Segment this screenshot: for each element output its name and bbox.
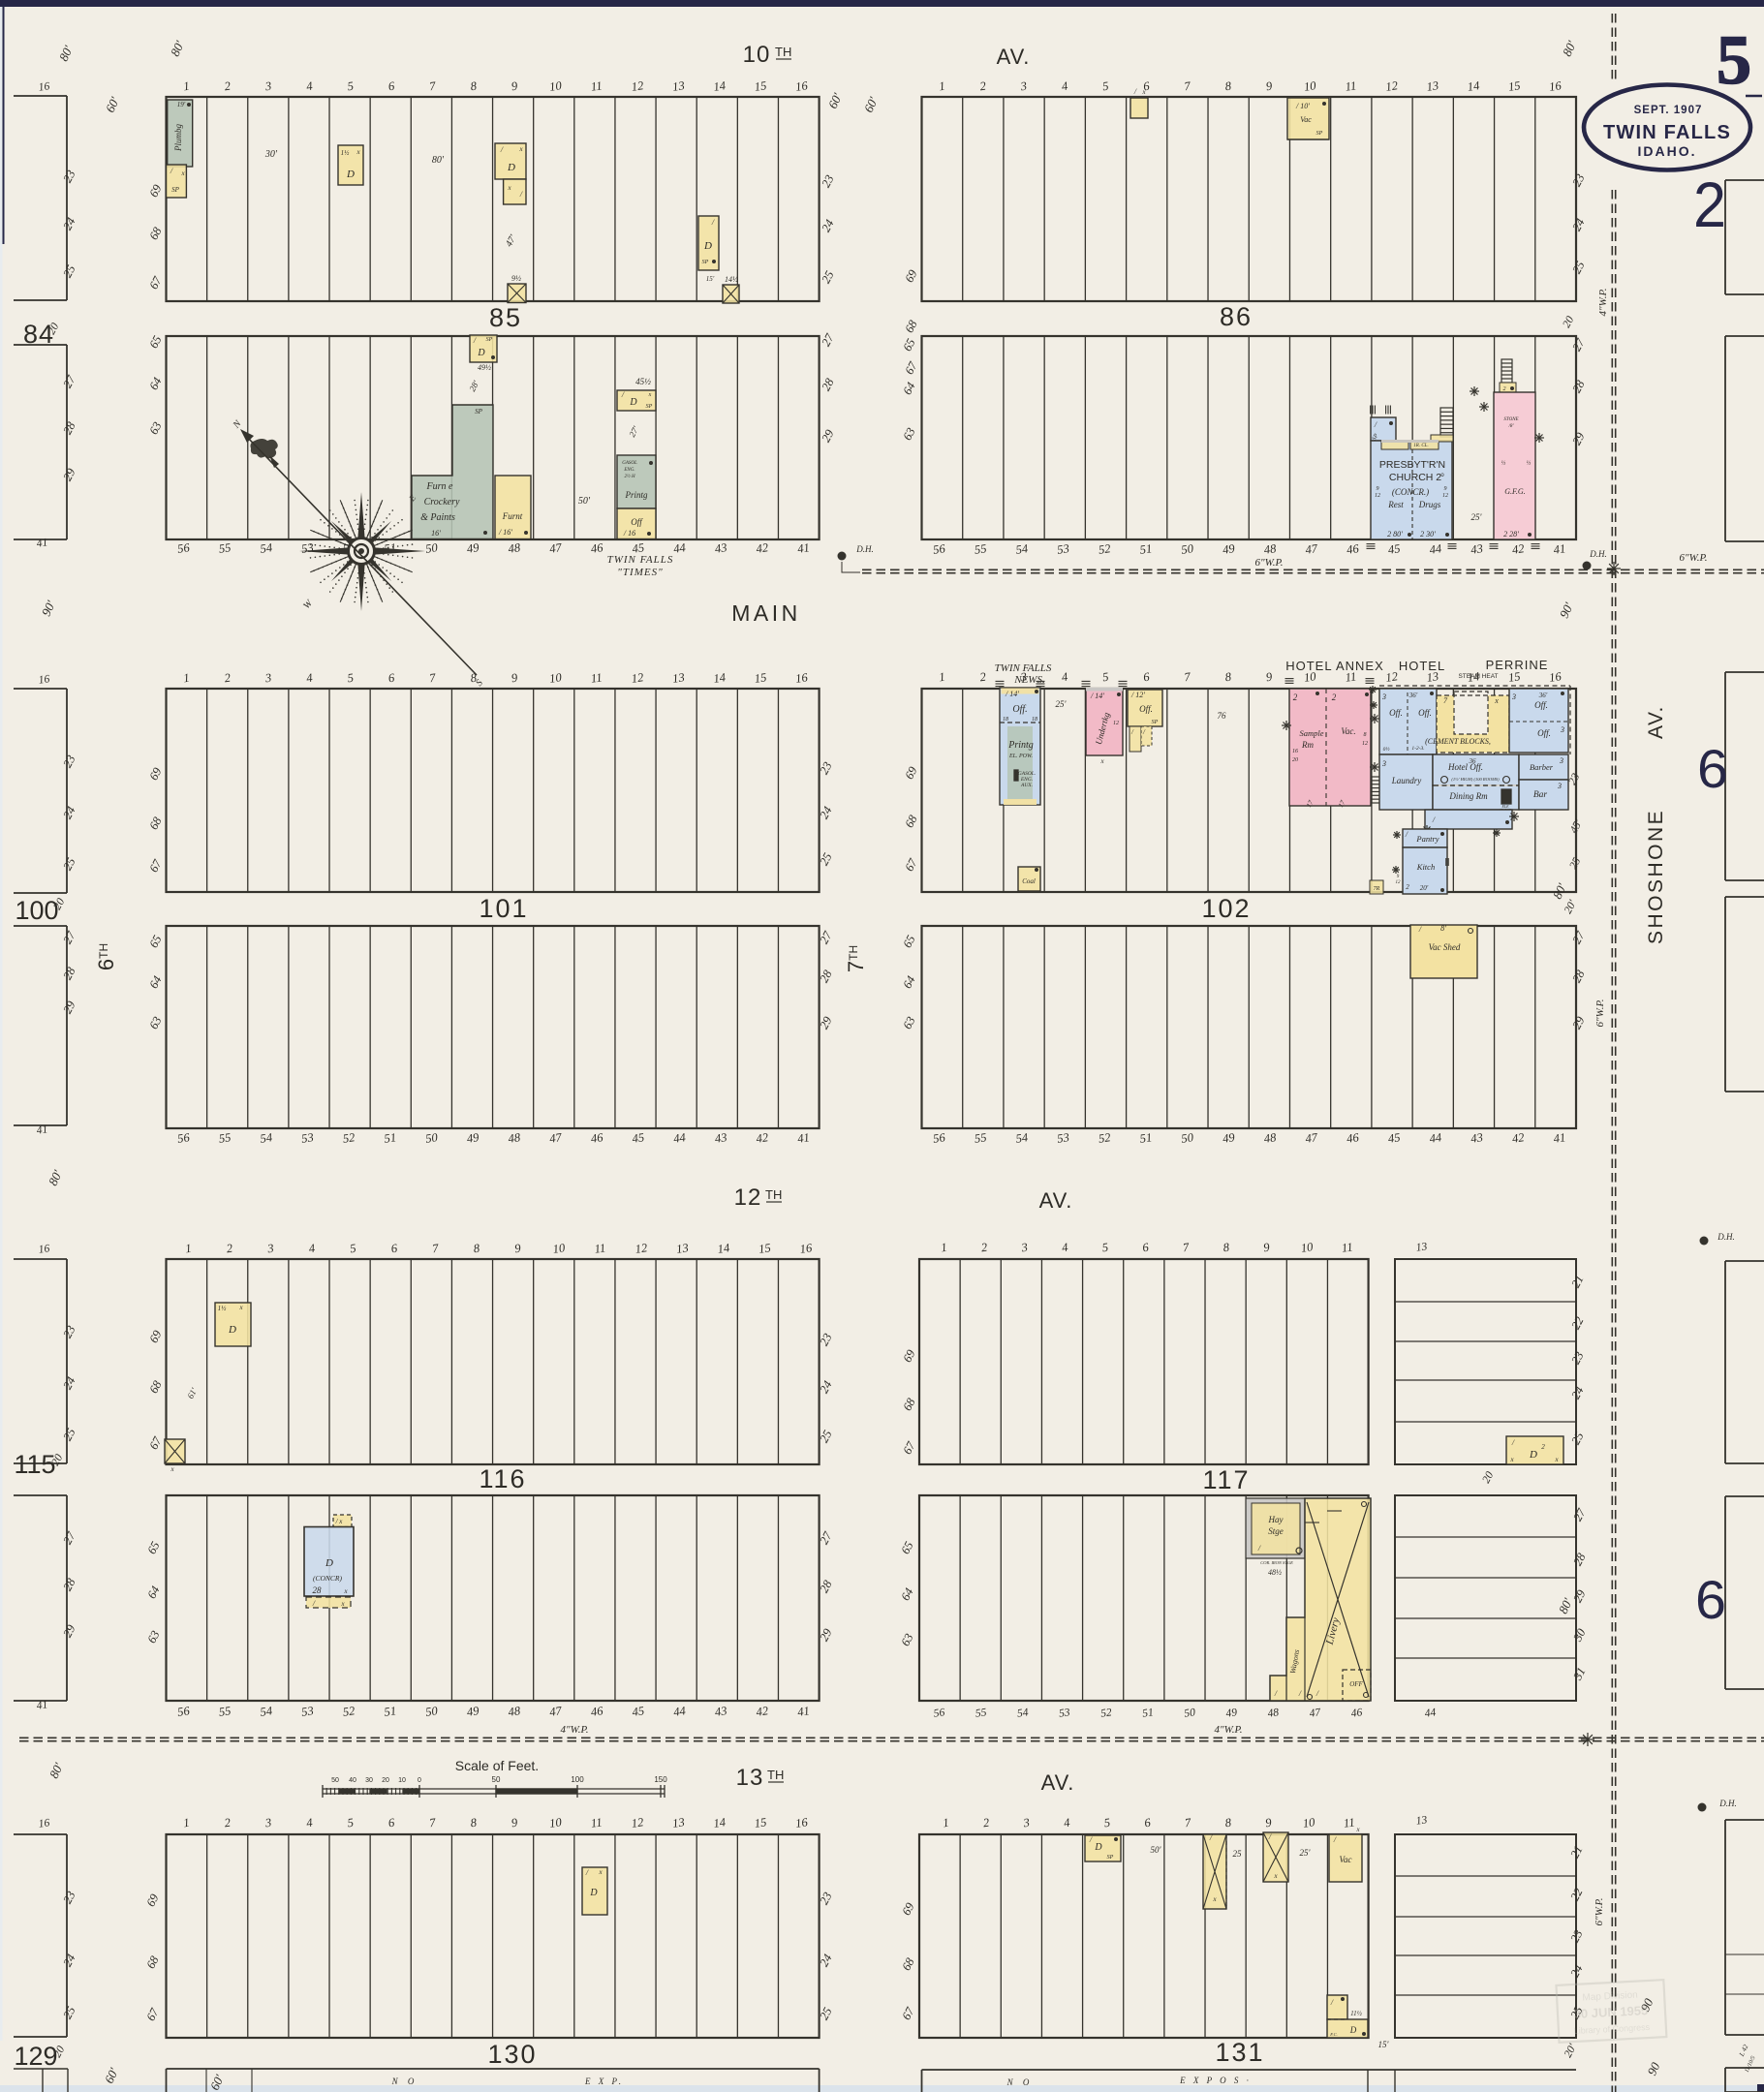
svg-text:45: 45 (632, 1704, 645, 1719)
svg-text:41: 41 (1553, 1130, 1566, 1146)
svg-text:8': 8' (1440, 924, 1446, 933)
svg-text:85: 85 (489, 303, 522, 332)
svg-text:45: 45 (1387, 1130, 1401, 1146)
svg-text:102: 102 (1201, 894, 1251, 923)
svg-text:52: 52 (342, 1704, 356, 1719)
svg-text:12: 12 (1384, 78, 1398, 94)
svg-text:/ 16': / 16' (498, 528, 512, 537)
svg-text:6: 6 (1695, 1569, 1726, 1630)
svg-text:PRESBYT'R'N: PRESBYT'R'N (1379, 459, 1445, 471)
svg-text:D: D (346, 169, 355, 180)
svg-text:12: 12 (631, 78, 644, 94)
svg-text:D: D (589, 1888, 598, 1898)
svg-text:50: 50 (1184, 1707, 1196, 1720)
svg-text:49: 49 (1225, 1707, 1238, 1720)
svg-text:Off.: Off. (1537, 728, 1551, 738)
svg-text:& Paints: & Paints (420, 512, 455, 523)
svg-text:Bar: Bar (1533, 790, 1548, 800)
svg-text:4"W.P.: 4"W.P. (560, 1724, 588, 1736)
svg-text:129: 129 (14, 2042, 57, 2071)
svg-text:16: 16 (38, 1243, 50, 1256)
svg-text:150: 150 (654, 1775, 667, 1784)
svg-text:x: x (648, 392, 652, 398)
svg-text:44: 44 (1424, 1707, 1437, 1720)
svg-text:Vac: Vac (1340, 1855, 1352, 1864)
svg-text:20': 20' (1420, 884, 1429, 892)
svg-text:3: 3 (1560, 725, 1564, 734)
svg-text:/ 14': / 14' (1005, 690, 1019, 698)
svg-text:13: 13 (1415, 1814, 1428, 1828)
svg-text:Sample: Sample (1299, 728, 1323, 738)
svg-text:Off.: Off. (1139, 704, 1153, 714)
svg-text:Rest: Rest (1387, 500, 1404, 509)
svg-text:SP: SP (486, 337, 493, 343)
svg-text:40: 40 (349, 1777, 356, 1784)
svg-text:1½: 1½ (218, 1305, 228, 1312)
svg-text:Dining Rm: Dining Rm (1448, 791, 1488, 801)
svg-text:TH: TH (767, 1768, 784, 1782)
svg-text:25: 25 (1233, 1849, 1243, 1859)
svg-text:12: 12 (1396, 880, 1402, 885)
svg-text:116: 116 (479, 1464, 526, 1493)
svg-text:Vac Shed: Vac Shed (1429, 942, 1461, 952)
svg-text:16: 16 (38, 1817, 50, 1830)
svg-text:D.H.: D.H. (1717, 1232, 1735, 1242)
svg-text:42: 42 (756, 540, 769, 556)
svg-text:52: 52 (342, 1130, 356, 1146)
svg-text:AV.: AV. (1645, 705, 1667, 739)
svg-text:13: 13 (675, 1241, 689, 1256)
svg-text:52: 52 (1099, 1707, 1112, 1720)
svg-text:Hay: Hay (1268, 1515, 1284, 1524)
svg-text:6: 6 (1697, 738, 1728, 799)
svg-text:55: 55 (974, 1130, 987, 1146)
svg-text:55: 55 (974, 541, 987, 557)
svg-text:55: 55 (218, 1704, 232, 1719)
svg-text:80': 80' (432, 155, 445, 166)
svg-text:16: 16 (38, 673, 50, 687)
svg-text:SEPT. 1907: SEPT. 1907 (1634, 105, 1703, 116)
svg-text:D.H.: D.H. (855, 544, 874, 554)
svg-text:Vac.: Vac. (1341, 726, 1355, 736)
svg-text:Crockery: Crockery (424, 497, 460, 508)
svg-text:49½: 49½ (478, 363, 491, 372)
svg-text:12: 12 (1384, 669, 1398, 685)
svg-text:D: D (477, 348, 485, 358)
svg-text:4"W.P.: 4"W.P. (1214, 1724, 1242, 1736)
svg-text:0: 0 (418, 1777, 421, 1784)
svg-text:AV.: AV. (1041, 1770, 1075, 1795)
svg-text:19': 19' (177, 101, 186, 108)
svg-text:3: 3 (1381, 759, 1386, 768)
svg-text:HOTEL: HOTEL (1399, 659, 1445, 673)
svg-text:30': 30' (264, 149, 278, 160)
svg-text:N O: N O (1006, 2077, 1034, 2087)
svg-text:53: 53 (300, 1130, 314, 1146)
svg-text:/ 16: / 16 (623, 529, 635, 538)
svg-text:/ 10': / 10' (1295, 102, 1310, 110)
svg-text:Off.: Off. (1012, 704, 1027, 715)
svg-text:D: D (703, 240, 712, 252)
svg-text:51: 51 (384, 1704, 397, 1719)
svg-text:56: 56 (933, 1707, 945, 1720)
svg-text:D: D (629, 397, 637, 408)
svg-text:D: D (1529, 1449, 1537, 1461)
svg-text:50': 50' (1151, 1845, 1162, 1855)
svg-text:½: ½ (1527, 460, 1532, 467)
svg-text:0½: 0½ (1383, 746, 1390, 753)
svg-text:45: 45 (1387, 541, 1401, 557)
svg-text:(CONCR): (CONCR) (313, 1574, 343, 1583)
svg-text:30: 30 (365, 1777, 373, 1784)
svg-text:2: 2 (1293, 692, 1298, 702)
svg-text:12: 12 (1362, 741, 1368, 747)
svg-text:43: 43 (714, 540, 727, 556)
svg-text:11: 11 (590, 78, 603, 93)
svg-text:AUX.: AUX. (1020, 783, 1033, 788)
svg-text:12: 12 (1442, 493, 1448, 499)
svg-text:20: 20 (382, 1777, 389, 1784)
svg-text:44: 44 (1429, 541, 1442, 557)
svg-text:13: 13 (736, 1765, 764, 1791)
svg-text:Kitch: Kitch (1416, 862, 1435, 872)
svg-text:MAIN: MAIN (731, 600, 801, 626)
svg-text:55: 55 (218, 1130, 232, 1146)
svg-text:13: 13 (671, 670, 685, 686)
svg-text:2 28': 2 28' (1503, 530, 1519, 538)
svg-text:SP: SP (702, 260, 709, 265)
svg-text:Printg: Printg (624, 490, 648, 500)
svg-text:11: 11 (1341, 1240, 1353, 1254)
svg-text:D: D (228, 1324, 236, 1336)
svg-text:76: 76 (1218, 711, 1227, 721)
svg-text:SP: SP (646, 404, 653, 410)
svg-text:41: 41 (796, 1704, 810, 1719)
svg-text:Plumbg: Plumbg (173, 124, 183, 152)
svg-text:48½: 48½ (1268, 1568, 1282, 1577)
svg-text:SHOSHONE: SHOSHONE (1645, 809, 1667, 944)
svg-text:11: 11 (1345, 78, 1357, 93)
svg-text:13: 13 (671, 78, 685, 94)
svg-text:D.H.: D.H. (1589, 549, 1607, 559)
svg-text:54: 54 (1016, 1707, 1029, 1720)
svg-text:"TIMES": "TIMES" (617, 567, 663, 578)
svg-text:EL. POW.: EL. POW. (1008, 754, 1033, 759)
svg-text:18: 18 (1003, 717, 1008, 723)
svg-text:SP: SP (1152, 720, 1159, 725)
svg-text:54: 54 (260, 1130, 273, 1146)
svg-text:3: 3 (1381, 692, 1386, 701)
svg-text:6"W.P.: 6"W.P. (1679, 552, 1707, 564)
svg-text:55: 55 (975, 1707, 987, 1720)
svg-text:44: 44 (1429, 1130, 1442, 1146)
svg-text:Scale of Feet.: Scale of Feet. (455, 1758, 539, 1773)
svg-text:SP: SP (1107, 1855, 1114, 1861)
svg-text:130: 130 (487, 2040, 537, 2069)
svg-text:Barber: Barber (1530, 762, 1554, 772)
svg-text:/8': /8' (1508, 424, 1515, 429)
svg-text:9: 9 (1377, 486, 1379, 492)
svg-text:Off.: Off. (1534, 700, 1548, 710)
svg-text:13: 13 (671, 1815, 685, 1830)
svg-text:46: 46 (1350, 1707, 1363, 1720)
svg-text:TWIN FALLS: TWIN FALLS (995, 662, 1052, 674)
svg-text:12: 12 (734, 1184, 762, 1211)
svg-text:2: 2 (1503, 386, 1506, 392)
svg-text:44: 44 (672, 1130, 686, 1146)
svg-text:/ 12': / 12' (1130, 691, 1145, 699)
svg-text:44: 44 (672, 540, 686, 556)
svg-text:15: 15 (758, 1241, 771, 1256)
svg-text:100: 100 (571, 1775, 584, 1784)
svg-text:Off: Off (631, 517, 643, 527)
svg-text:AV.: AV. (997, 45, 1031, 69)
svg-text:54: 54 (1015, 1130, 1029, 1146)
svg-text:52: 52 (1098, 541, 1111, 557)
svg-text:15: 15 (754, 78, 767, 94)
svg-text:12: 12 (631, 670, 644, 686)
svg-text:53: 53 (1056, 541, 1069, 557)
svg-text:53: 53 (1058, 1707, 1070, 1720)
svg-text:2 80': 2 80' (1387, 530, 1403, 538)
svg-text:Furnt: Furnt (502, 511, 523, 521)
svg-text:101: 101 (479, 894, 528, 923)
svg-text:9½: 9½ (511, 274, 521, 283)
svg-text:42: 42 (756, 1130, 769, 1146)
svg-text:/ 14': / 14' (1090, 692, 1104, 700)
svg-text:18: 18 (1032, 717, 1037, 723)
svg-text:7R: 7R (1374, 886, 1380, 892)
svg-text:16': 16' (431, 529, 441, 538)
svg-text:13: 13 (1415, 1241, 1428, 1254)
svg-text:4"W.P.: 4"W.P. (1597, 288, 1609, 316)
svg-text:ENG.: ENG. (623, 468, 634, 473)
svg-text:51: 51 (1142, 1707, 1155, 1719)
svg-text:42: 42 (1511, 1130, 1525, 1146)
svg-text:11: 11 (1343, 1815, 1355, 1830)
svg-text:F.C.: F.C. (1329, 2032, 1337, 2037)
svg-text:6"W.P.: 6"W.P. (1594, 1897, 1605, 1925)
svg-text:TH: TH (765, 1187, 782, 1202)
svg-text:45: 45 (632, 1130, 645, 1146)
svg-text:45½: 45½ (635, 377, 651, 386)
svg-text:20: 20 (1292, 757, 1298, 763)
svg-text:½: ½ (1501, 460, 1506, 467)
svg-text:11: 11 (594, 1241, 606, 1255)
svg-text:AV.: AV. (1039, 1188, 1073, 1213)
svg-text:x: x (1494, 696, 1499, 705)
svg-text:/ x: / x (335, 1518, 344, 1525)
svg-text:STEAM HEAT: STEAM HEAT (1458, 673, 1498, 680)
svg-text:Hotel Off.: Hotel Off. (1447, 762, 1483, 772)
svg-text:15': 15' (706, 275, 715, 283)
svg-text:2: 2 (1332, 692, 1337, 702)
svg-text:Vac: Vac (1300, 115, 1312, 124)
svg-text:HOTEL ANNEX: HOTEL ANNEX (1285, 659, 1384, 673)
svg-text:16: 16 (38, 80, 50, 94)
svg-text:13: 13 (1426, 78, 1439, 94)
svg-text:COR. IRON STGE: COR. IRON STGE (1260, 1560, 1293, 1565)
svg-text:15: 15 (754, 1815, 767, 1830)
svg-text:43: 43 (714, 1704, 727, 1719)
svg-text:3: 3 (1559, 756, 1563, 765)
svg-text:12: 12 (634, 1241, 648, 1256)
svg-text:1-2-3.: 1-2-3. (1411, 746, 1424, 752)
svg-text:15: 15 (1507, 78, 1521, 94)
svg-text:100: 100 (15, 896, 58, 925)
svg-text:6"W.P.: 6"W.P. (1594, 999, 1606, 1027)
svg-text:D.H.: D.H. (1718, 1799, 1737, 1808)
svg-text:2: 2 (1693, 169, 1726, 240)
svg-text:CHURCH 2: CHURCH 2 (1389, 472, 1441, 483)
svg-text:25': 25' (1471, 512, 1483, 522)
svg-text:2½ H: 2½ H (624, 475, 635, 479)
svg-text:E X P.: E X P. (584, 2077, 624, 2086)
svg-text:12: 12 (631, 1815, 644, 1830)
svg-text:E X P O S ·: E X P O S · (1179, 2076, 1252, 2085)
svg-text:TH: TH (775, 45, 791, 59)
svg-text:PERRINE: PERRINE (1486, 658, 1549, 672)
svg-text:10: 10 (398, 1777, 406, 1784)
svg-text:D: D (1094, 1842, 1102, 1853)
svg-text:Laundry: Laundry (1391, 776, 1422, 785)
svg-text:41: 41 (796, 1130, 810, 1146)
svg-text:IDAHO.: IDAHO. (1638, 143, 1697, 159)
svg-text:11½: 11½ (1350, 2010, 1362, 2017)
svg-text:Pantry: Pantry (1415, 834, 1439, 844)
svg-text:TWIN FALLS: TWIN FALLS (607, 554, 674, 566)
svg-text:SP: SP (1316, 131, 1323, 137)
svg-text:14½: 14½ (725, 275, 738, 284)
svg-text:Stge: Stge (1268, 1526, 1284, 1536)
svg-text:41: 41 (36, 537, 48, 549)
svg-text:Off.: Off. (1389, 708, 1403, 718)
svg-text:43: 43 (1470, 1130, 1483, 1146)
svg-text:3: 3 (1511, 692, 1516, 701)
svg-text:15: 15 (754, 670, 767, 686)
svg-text:2: 2 (1541, 1443, 1545, 1451)
svg-text:44: 44 (672, 1704, 686, 1719)
svg-text:Drugs: Drugs (1418, 500, 1441, 509)
svg-text:41: 41 (36, 1699, 48, 1711)
svg-text:54: 54 (1015, 541, 1029, 557)
svg-text:41: 41 (36, 1123, 48, 1136)
svg-text:54: 54 (260, 540, 273, 556)
svg-text:54: 54 (260, 1704, 273, 1719)
svg-text:42: 42 (756, 1704, 769, 1719)
svg-text:8: 8 (1364, 732, 1367, 738)
svg-text:G.F.G.: G.F.G. (1504, 487, 1525, 496)
svg-text:5: 5 (1717, 21, 1751, 99)
svg-text:OFF: OFF (1349, 1680, 1363, 1688)
svg-text:(1½' HIGH) (100 ROOMS): (1½' HIGH) (100 ROOMS) (1451, 777, 1500, 782)
svg-text:3: 3 (1557, 782, 1562, 790)
svg-text:53: 53 (1056, 1130, 1069, 1146)
svg-text:2: 2 (1406, 883, 1409, 891)
svg-text:12: 12 (1375, 493, 1380, 499)
svg-text:42: 42 (1511, 541, 1525, 557)
svg-text:36': 36' (1408, 692, 1418, 699)
svg-text:51: 51 (1139, 1130, 1153, 1146)
svg-text:(CEMENT BLOCKS,: (CEMENT BLOCKS, (1425, 737, 1491, 746)
svg-text:2 30': 2 30' (1420, 530, 1436, 538)
svg-text:131: 131 (1215, 2038, 1264, 2067)
svg-text:53: 53 (300, 1704, 314, 1719)
svg-text:6"W.P.: 6"W.P. (1254, 557, 1283, 569)
svg-text:Coal: Coal (1022, 877, 1036, 885)
svg-text:(CONCR.): (CONCR.) (1392, 487, 1429, 497)
svg-text:D: D (325, 1557, 333, 1569)
svg-text:14: 14 (1467, 78, 1480, 94)
svg-text:SP: SP (171, 186, 180, 194)
svg-text:14: 14 (717, 1241, 730, 1256)
svg-text:43: 43 (1470, 541, 1483, 557)
svg-text:16: 16 (1292, 749, 1298, 754)
svg-text:Off.: Off. (1418, 708, 1432, 718)
svg-text:28: 28 (313, 1585, 323, 1595)
svg-text:11: 11 (590, 670, 603, 685)
svg-text:SP: SP (475, 408, 483, 415)
svg-text:N O: N O (391, 2077, 418, 2086)
svg-text:48: 48 (1267, 1707, 1280, 1720)
svg-text:52: 52 (1098, 1130, 1111, 1146)
svg-text:11: 11 (590, 1815, 603, 1830)
svg-text:Printg: Printg (1007, 740, 1034, 751)
svg-text:36': 36' (1538, 692, 1548, 699)
svg-text:50': 50' (578, 496, 591, 507)
svg-text:15': 15' (1378, 2040, 1390, 2049)
svg-text:TWIN FALLS: TWIN FALLS (1603, 122, 1731, 143)
svg-text:55: 55 (218, 540, 232, 556)
svg-text:43: 43 (714, 1130, 727, 1146)
svg-text:Rm: Rm (1301, 740, 1314, 750)
svg-text:25': 25' (1300, 1848, 1312, 1858)
svg-text:12: 12 (1113, 721, 1119, 726)
svg-text:GASOL: GASOL (622, 461, 637, 466)
svg-text:115: 115 (14, 1450, 55, 1479)
svg-text:14: 14 (713, 1815, 727, 1830)
svg-text:41: 41 (1553, 541, 1566, 557)
svg-text:50: 50 (492, 1775, 501, 1784)
svg-text:86: 86 (1220, 302, 1253, 331)
svg-text:53: 53 (300, 540, 314, 556)
svg-text:D: D (507, 162, 515, 173)
svg-text:25': 25' (1056, 699, 1068, 709)
svg-text:14: 14 (713, 670, 727, 686)
svg-text:STONE: STONE (1503, 417, 1518, 422)
svg-text:9: 9 (1444, 486, 1447, 492)
svg-text:117: 117 (1202, 1465, 1250, 1494)
svg-text:1½: 1½ (341, 149, 351, 157)
svg-text:1R. CL.: 1R. CL. (1413, 444, 1428, 448)
svg-text:41: 41 (796, 540, 810, 556)
svg-text:14: 14 (713, 78, 727, 94)
svg-text:10: 10 (743, 42, 771, 68)
svg-text:51: 51 (1139, 541, 1153, 557)
svg-text:D: D (1349, 2025, 1357, 2035)
svg-text:50: 50 (331, 1777, 339, 1784)
svg-text:51: 51 (384, 1130, 397, 1146)
svg-text:Furn e: Furn e (426, 481, 454, 492)
